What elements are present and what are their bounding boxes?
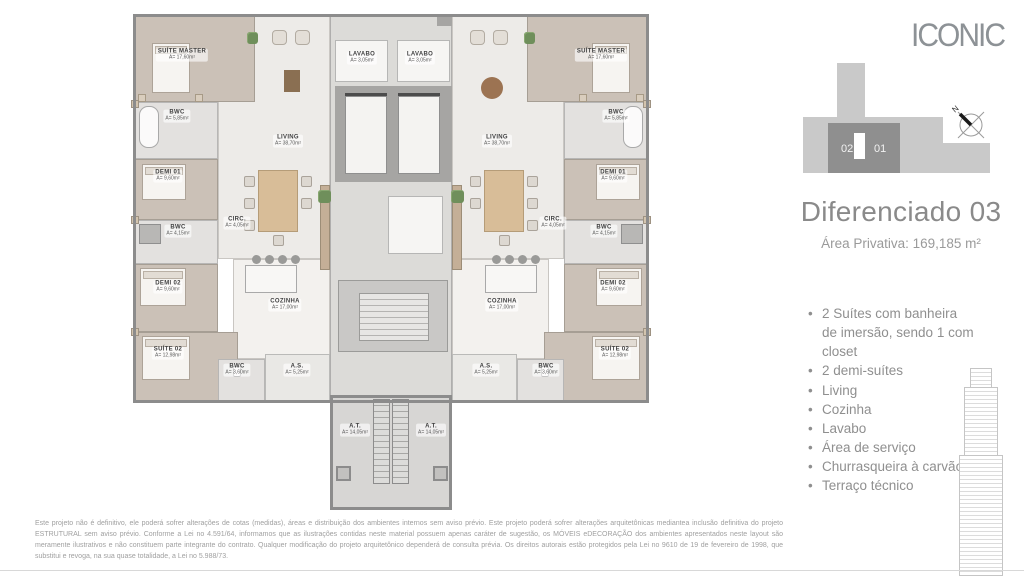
room-label: LIVINGA= 38,70m² bbox=[482, 135, 512, 148]
extension-wall bbox=[330, 395, 452, 510]
room-label: BWCA= 5,85m² bbox=[602, 110, 629, 123]
feature-item: Terraço técnico bbox=[806, 476, 974, 495]
feature-item: Lavabo bbox=[806, 419, 974, 438]
feature-item: 2 demi-suítes bbox=[806, 361, 974, 380]
feature-item: Cozinha bbox=[806, 400, 974, 419]
room-label: BWCA= 4,15m² bbox=[164, 225, 191, 238]
floorplan-sheet: SUÍTE MASTERA= 17,60m² BWCA= 5,85m² DEMI… bbox=[0, 0, 1024, 576]
footer-divider bbox=[0, 570, 1024, 571]
room-label: BWCA= 5,85m² bbox=[163, 110, 190, 123]
room-label: DEMI 02A= 9,60m² bbox=[598, 281, 627, 294]
title-block: Diferenciado 03 Área Privativa: 169,185 … bbox=[785, 196, 1017, 251]
room-label: COZINHAA= 17,00m² bbox=[485, 299, 518, 312]
keyplan: 02 01 N bbox=[800, 55, 1010, 185]
room-label: BWCA= 3,60m² bbox=[532, 364, 559, 377]
room-label: DEMI 01A= 9,60m² bbox=[598, 170, 627, 183]
floor-plan: SUÍTE MASTERA= 17,60m² BWCA= 5,85m² DEMI… bbox=[133, 14, 649, 510]
room-label: SUÍTE 02A= 12,98m² bbox=[599, 347, 631, 360]
north-arrow-icon: N bbox=[950, 104, 984, 138]
legal-disclaimer: Este projeto não é definitivo, ele poder… bbox=[35, 519, 783, 562]
page-subtitle: Área Privativa: 169,185 m² bbox=[785, 236, 1017, 251]
room-label: LAVABOA= 3,05m² bbox=[405, 52, 435, 65]
feature-item: Living bbox=[806, 381, 974, 400]
room-label: A.T.A= 14,05m² bbox=[416, 424, 446, 437]
room-label: BWCA= 3,60m² bbox=[223, 364, 250, 377]
room-label: SUÍTE 02A= 12,98m² bbox=[152, 347, 184, 360]
feature-item: Área de serviço bbox=[806, 438, 974, 457]
keyplan-drawing: 02 01 N bbox=[800, 55, 1010, 185]
room-label: LAVABOA= 3,05m² bbox=[347, 52, 377, 65]
room-label: DEMI 02A= 9,60m² bbox=[153, 281, 182, 294]
feature-list: 2 Suítes com banheira de imersão, sendo … bbox=[806, 304, 974, 496]
room-label: SUÍTE MASTERA= 17,60m² bbox=[575, 49, 627, 62]
room-label: CIRC.A= 4,05m² bbox=[539, 217, 566, 230]
exterior-wall bbox=[133, 14, 649, 403]
feature-item: Churrasqueira à carvão bbox=[806, 457, 974, 476]
room-label: CIRC.A= 4,05m² bbox=[223, 217, 250, 230]
room-label: BWCA= 4,15m² bbox=[590, 225, 617, 238]
iconic-logo: ICONIC bbox=[894, 18, 1004, 55]
room-label: A.S.A= 5,25m² bbox=[283, 364, 310, 377]
room-label: DEMI 01A= 9,60m² bbox=[153, 170, 182, 183]
page-title: Diferenciado 03 bbox=[785, 196, 1017, 228]
tower-upper bbox=[964, 387, 998, 456]
room-label: A.S.A= 5,25m² bbox=[472, 364, 499, 377]
room-label: COZINHAA= 17,00m² bbox=[268, 299, 301, 312]
room-label: SUÍTE MASTERA= 17,60m² bbox=[156, 49, 208, 62]
keyplan-unit-01: 01 bbox=[874, 143, 886, 155]
tower-lower bbox=[959, 455, 1003, 576]
room-label: LIVINGA= 38,70m² bbox=[273, 135, 303, 148]
room-label: A.T.A= 14,05m² bbox=[340, 424, 370, 437]
feature-item: 2 Suítes com banheira de imersão, sendo … bbox=[806, 304, 974, 361]
keyplan-unit-02: 02 bbox=[841, 143, 853, 155]
tower-cap bbox=[970, 368, 992, 388]
